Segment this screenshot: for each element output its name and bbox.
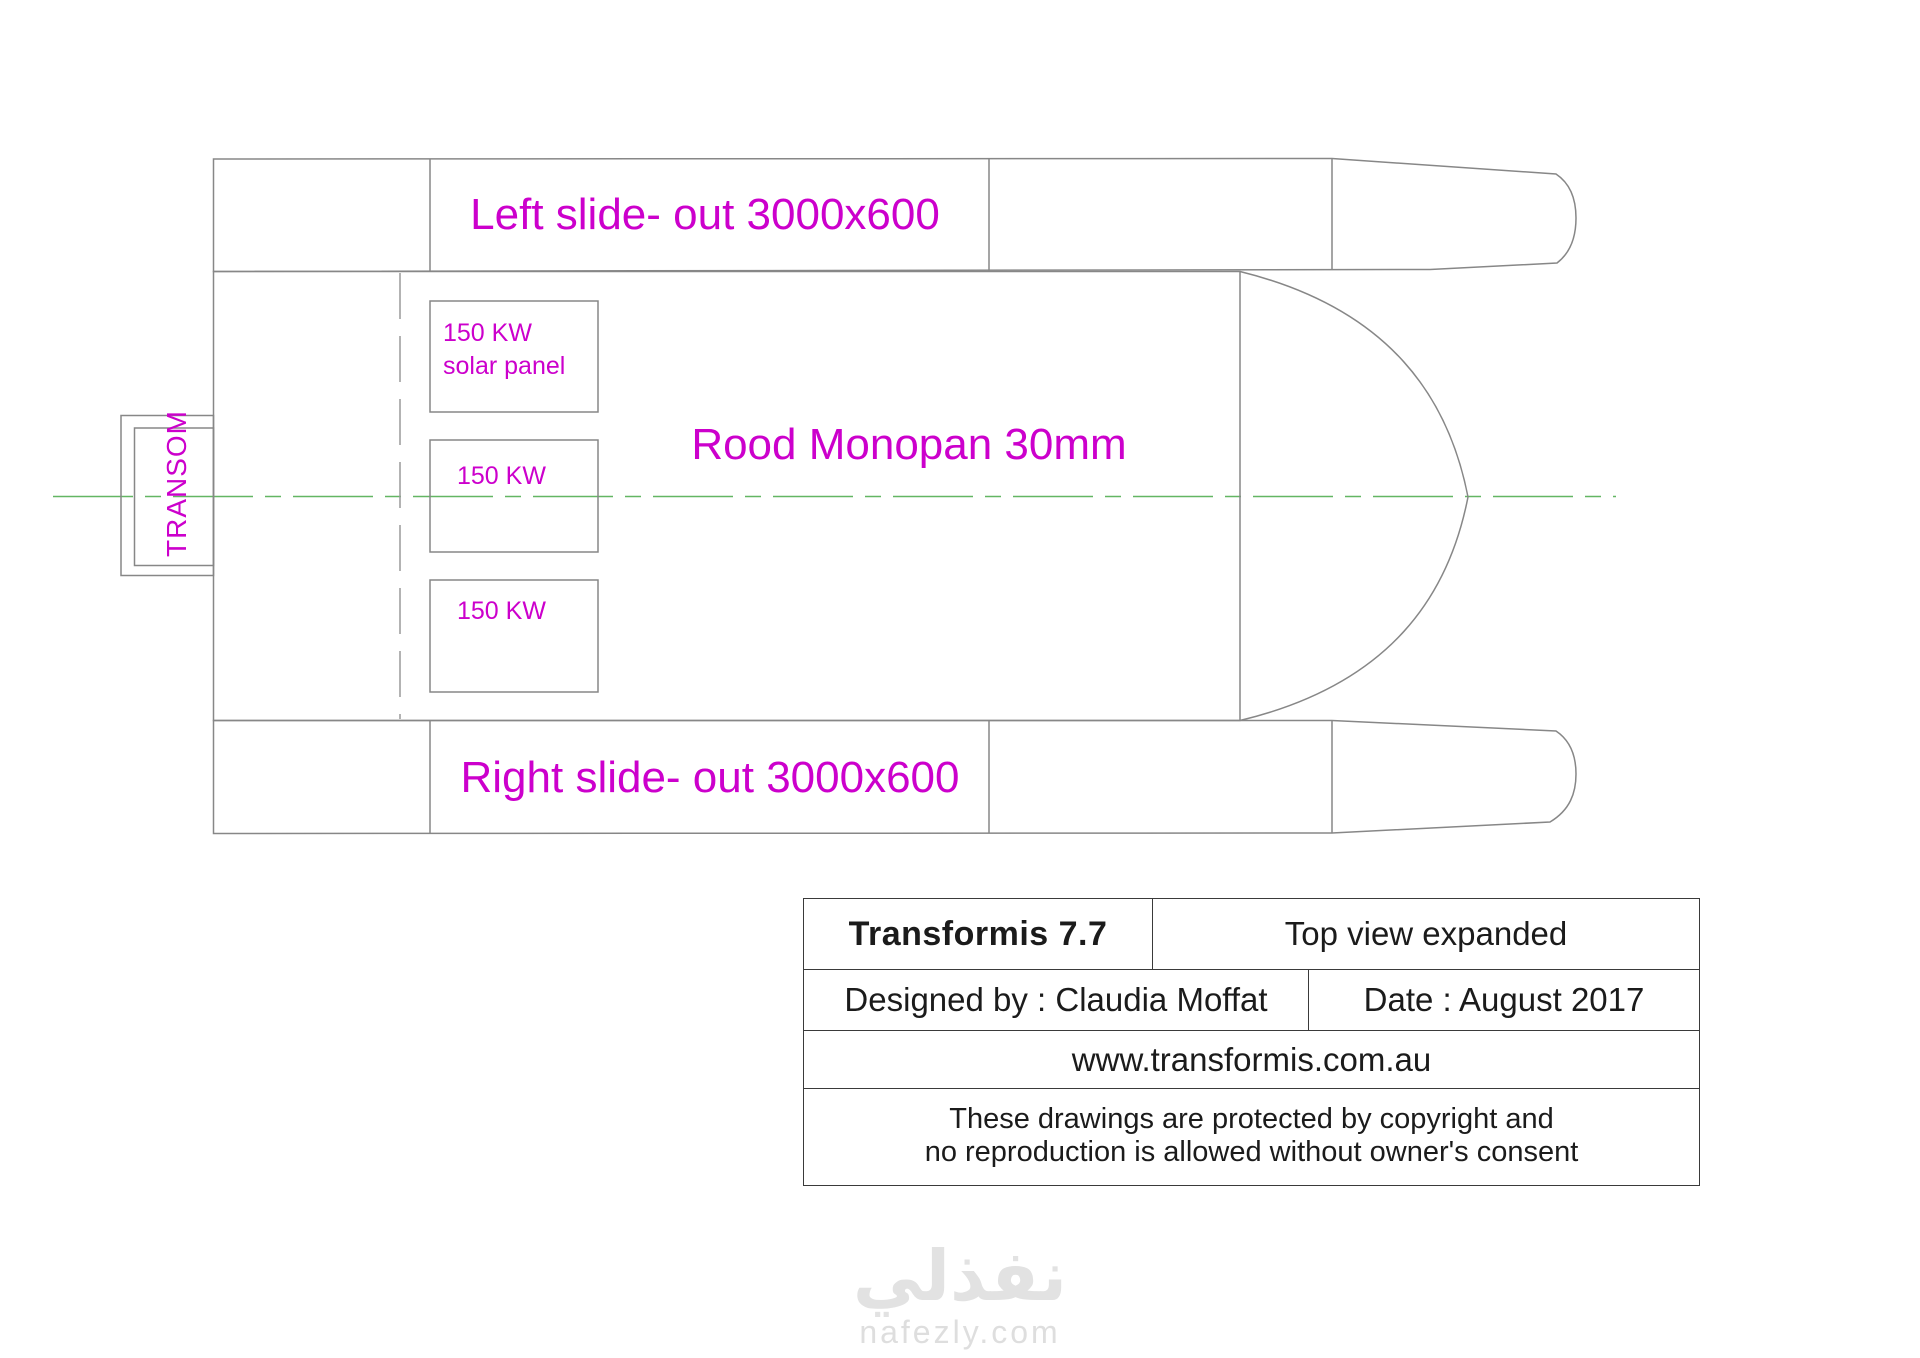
copyright-notice: These drawings are protected by copyrigh… <box>804 1089 1699 1183</box>
solar-panel-3-label: 150 KW <box>457 597 546 625</box>
right-slideout-label: Right slide- out 3000x600 <box>461 753 960 802</box>
view-name: Top view expanded <box>1153 899 1699 969</box>
solar-panel-1-label-line1: 150 KW <box>443 319 532 347</box>
model-name: Transformis 7.7 <box>804 899 1153 969</box>
transom-label: TRANSOM <box>161 410 192 557</box>
title-block: Transformis 7.7 Top view expanded Design… <box>803 898 1700 1186</box>
solar-panel-2-label: 150 KW <box>457 462 546 490</box>
roof-material-label: Rood Monopan 30mm <box>691 420 1126 469</box>
drawing-sheet: Left slide- out 3000x600 Right slide- ou… <box>0 0 1920 1358</box>
title-block-row-2: Designed by : Claudia Moffat Date : Augu… <box>804 970 1699 1031</box>
designed-by: Designed by : Claudia Moffat <box>804 970 1309 1030</box>
date: Date : August 2017 <box>1309 970 1699 1030</box>
title-block-row-3: www.transformis.com.au <box>804 1031 1699 1089</box>
copyright-line-2: no reproduction is allowed without owner… <box>925 1136 1579 1169</box>
left-slideout-label: Left slide- out 3000x600 <box>470 190 940 239</box>
website: www.transformis.com.au <box>804 1031 1699 1088</box>
title-block-row-1: Transformis 7.7 Top view expanded <box>804 899 1699 970</box>
copyright-line-1: These drawings are protected by copyrigh… <box>949 1103 1554 1136</box>
solar-panel-1-label-line2: solar panel <box>443 352 565 380</box>
